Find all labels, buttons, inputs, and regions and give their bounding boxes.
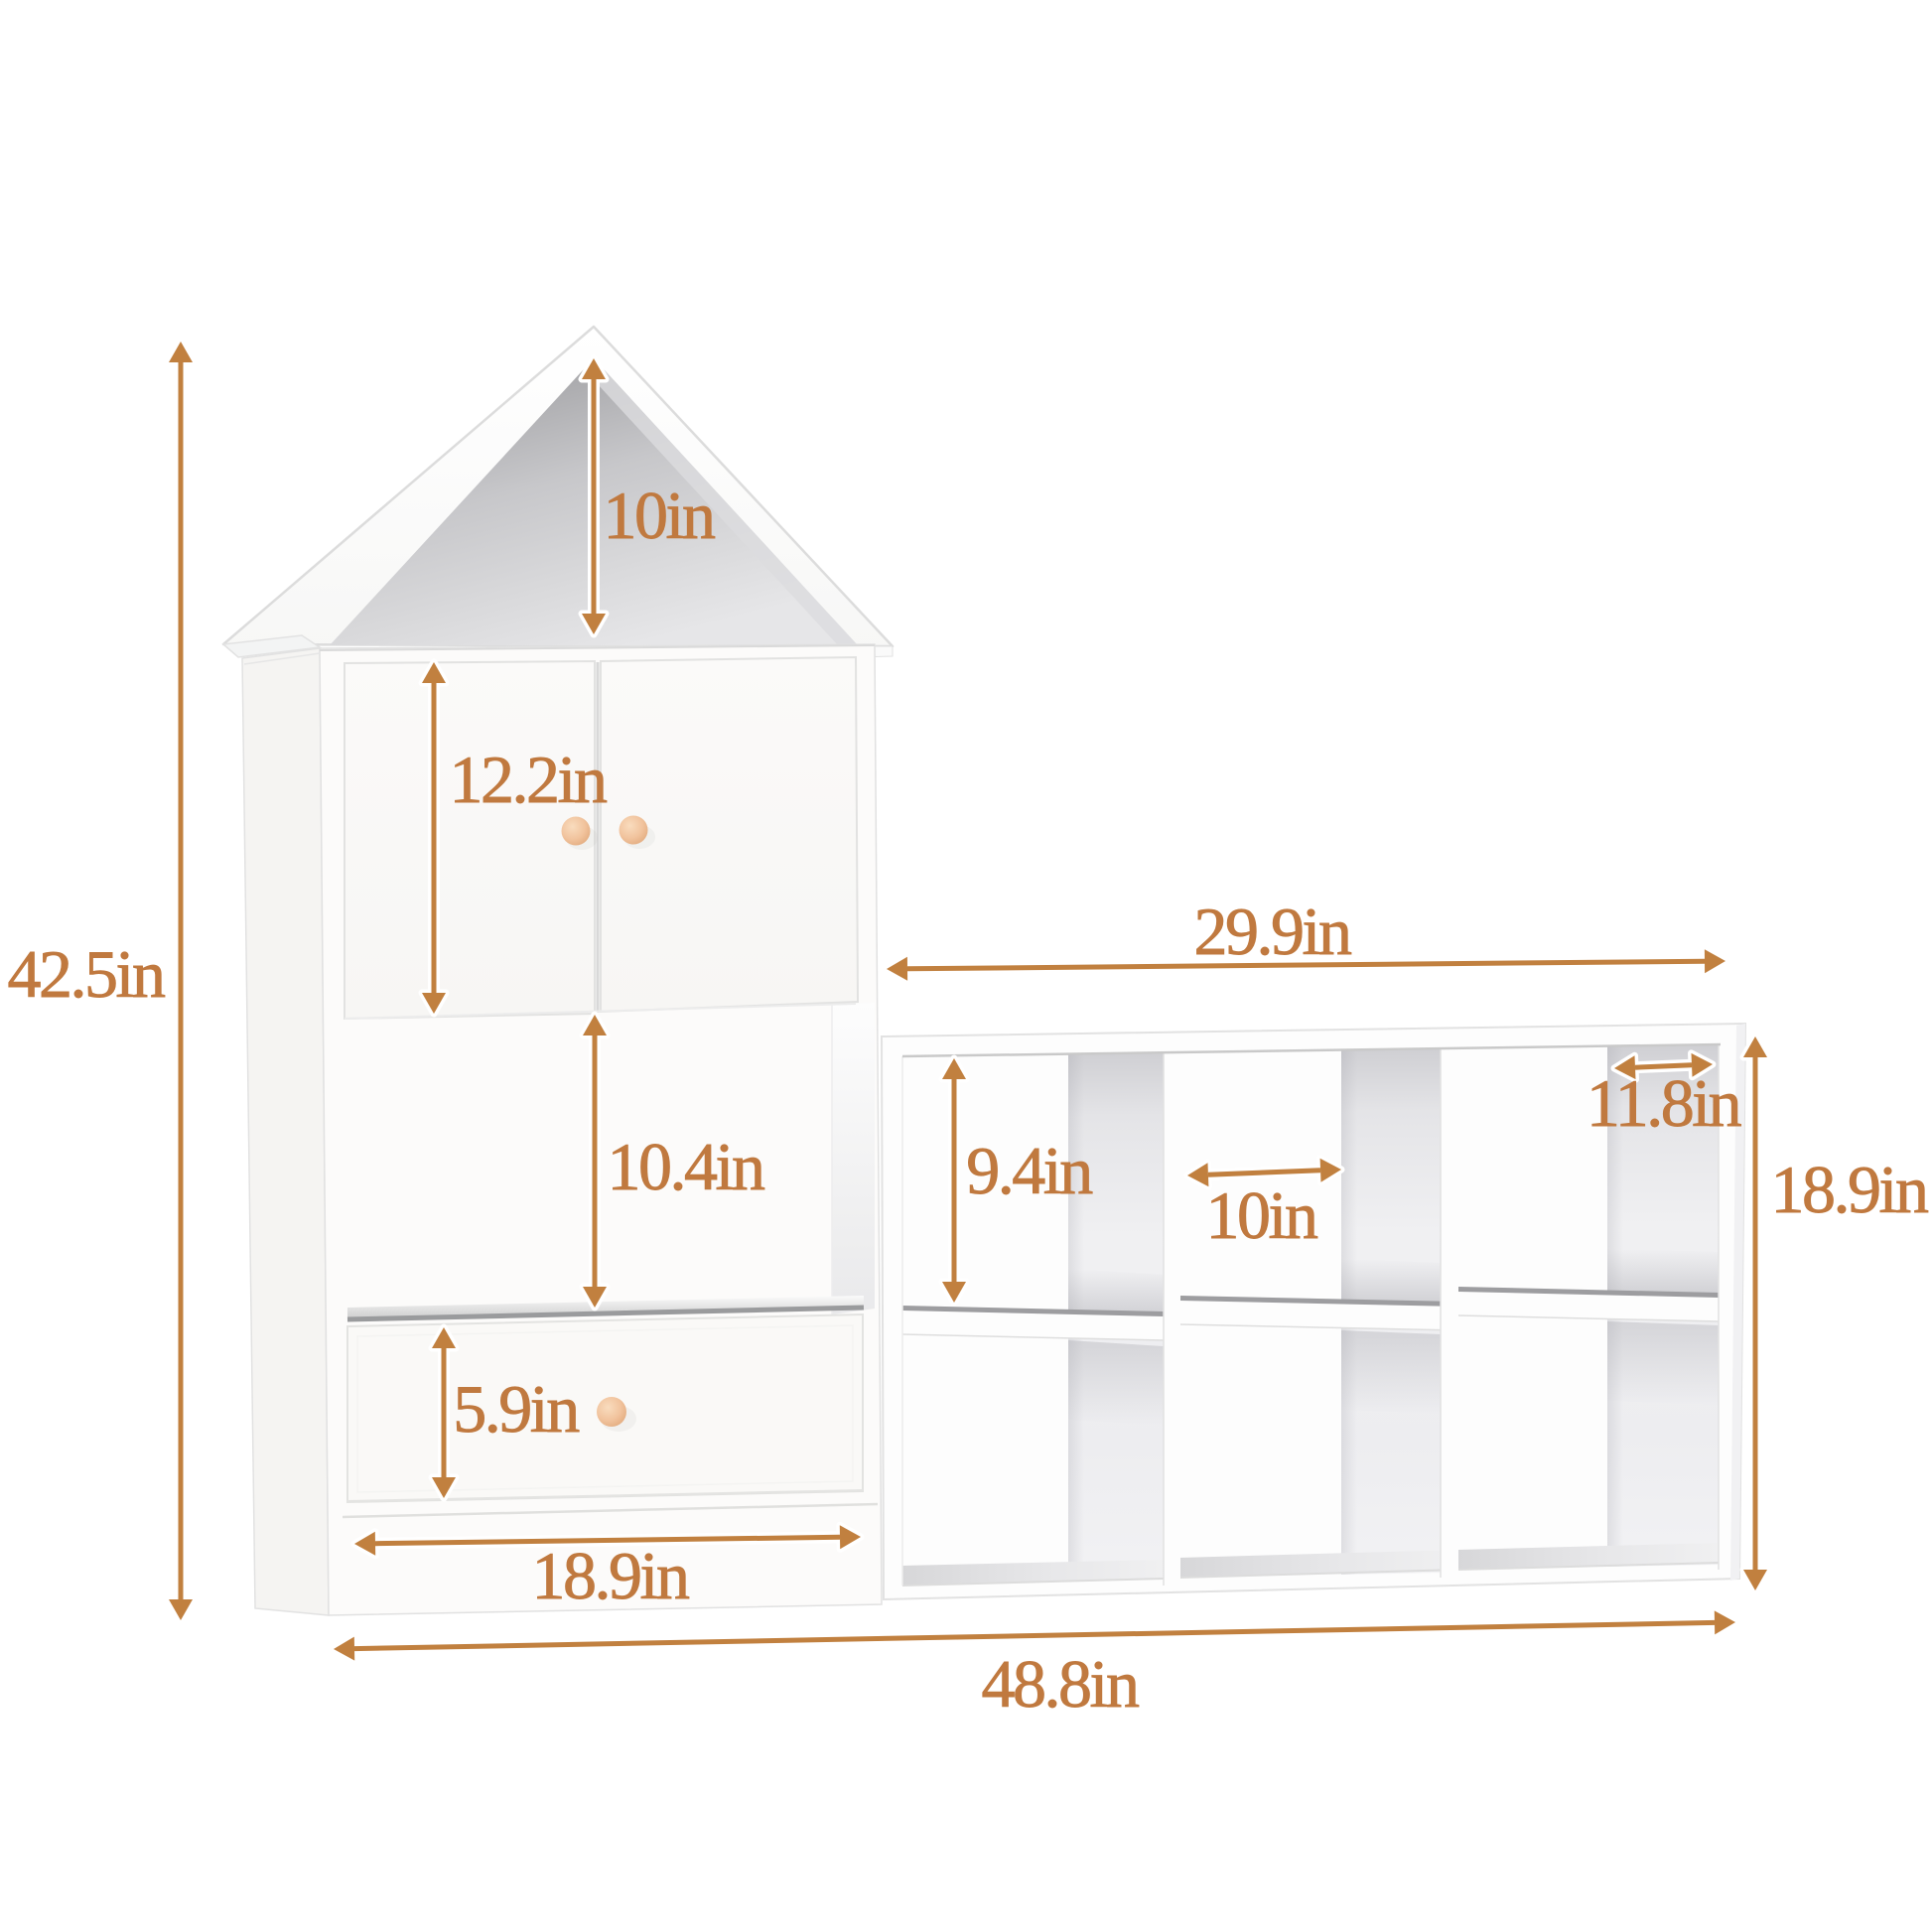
svg-text:12.2in: 12.2in [450,742,607,817]
svg-text:10in: 10in [604,478,715,553]
svg-text:11.8in: 11.8in [1587,1065,1741,1141]
svg-text:29.9in: 29.9in [1194,894,1351,969]
svg-text:42.5in: 42.5in [8,936,165,1012]
svg-text:10.4in: 10.4in [608,1129,764,1204]
svg-text:18.9in: 18.9in [1771,1152,1928,1227]
svg-text:18.9in: 18.9in [532,1538,689,1613]
svg-text:48.8in: 48.8in [982,1646,1139,1722]
svg-text:5.9in: 5.9in [453,1371,579,1447]
svg-text:10in: 10in [1206,1177,1317,1253]
svg-text:9.4in: 9.4in [966,1133,1092,1208]
